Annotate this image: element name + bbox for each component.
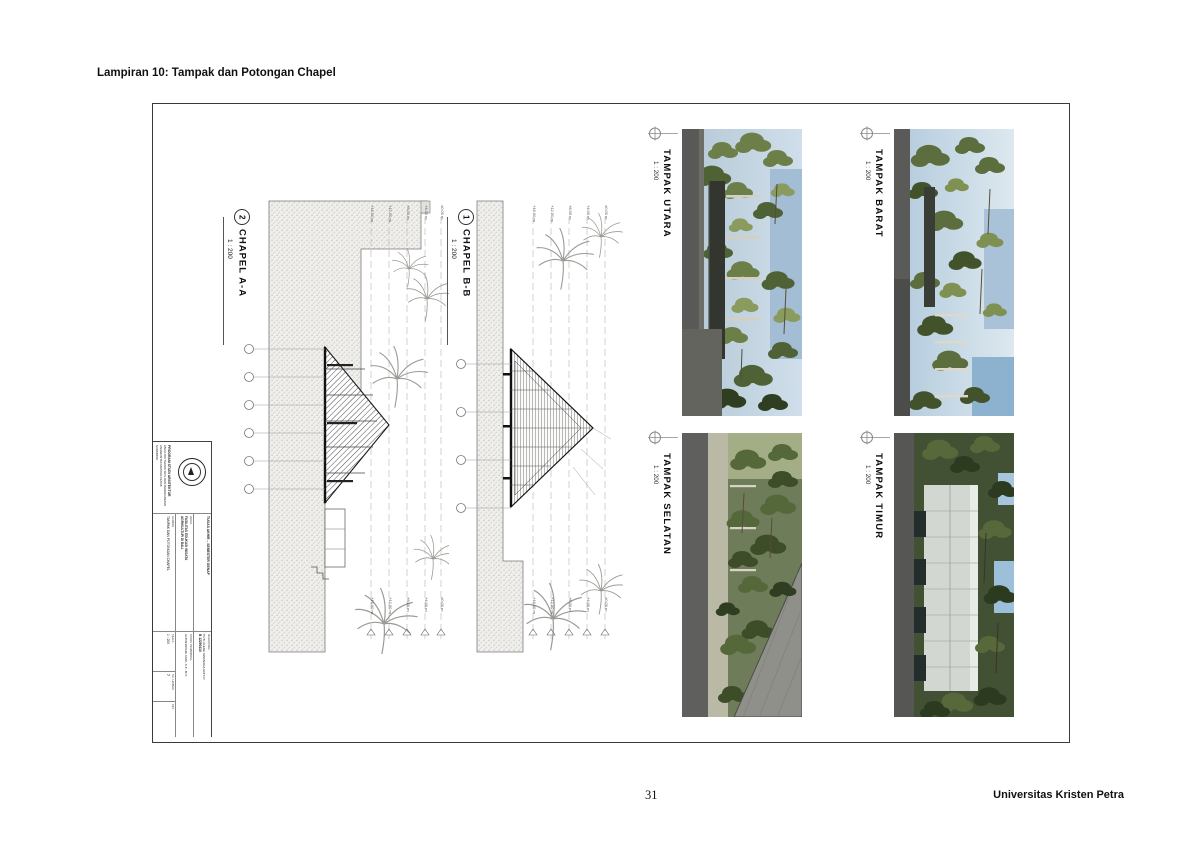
palm-glyphs-aa [355, 248, 449, 654]
svg-text:+8.00 m: +8.00 m [568, 205, 573, 220]
title-block-student-cell: MAHASISWA PUTU GEDE SWANAGA ADHI P. B 12… [193, 632, 211, 737]
svg-text:+4.00 m: +4.00 m [424, 597, 429, 612]
svg-text:+4.00 m: +4.00 m [586, 205, 591, 220]
svg-text:+12.00 m: +12.00 m [550, 205, 555, 222]
tampak-barat-label: 1 : 200 TAMPAK BARAT [859, 125, 891, 238]
label-rule [223, 217, 224, 345]
svg-text:+12.00 m: +12.00 m [388, 597, 393, 614]
svg-text:+4.00 m: +4.00 m [424, 205, 429, 220]
drawing-sheet: +16.00 m +12.00 m +8.00 m +4.00 m ±0.00 … [152, 103, 1070, 743]
svg-text:+4.00 m: +4.00 m [586, 597, 591, 612]
title-block-advisor-cell: DOSEN PEMBIMBING ALTREROSJE ASRI, S.T., … [175, 632, 193, 737]
tampak-utara-label: 1 : 200 TAMPAK UTARA [647, 125, 679, 238]
judul-label: JUDUL [189, 516, 192, 629]
svg-text:+8.00 m: +8.00 m [406, 205, 411, 220]
section-bb-scale: 1 : 200 [450, 239, 457, 345]
page-title: Lampiran 10: Tampak dan Potongan Chapel [97, 67, 336, 79]
section-aa-scale: 1 : 200 [226, 239, 233, 345]
section-aa-drawing: +16.00 m +12.00 m +8.00 m +4.00 m ±0.00 … [241, 199, 449, 654]
tampak-barat-title: TAMPAK BARAT [873, 149, 884, 238]
tampak-utara-title: TAMPAK UTARA [661, 149, 672, 238]
tampak-utara-image [682, 129, 802, 416]
skala-value: 1 : 200 [166, 634, 170, 669]
view-marker-icon [859, 429, 891, 446]
project-header: TUGAS AKHIR – SEMESTER GENAP [206, 516, 210, 629]
tampak-utara-scale: 1 : 200 [652, 161, 659, 238]
section-aa-label: 1 : 200 2 CHAPEL A-A [223, 209, 250, 345]
lembar-label: NO. LEMBAR [171, 674, 174, 699]
svg-text:+8.00 m: +8.00 m [406, 597, 411, 612]
svg-text:+16.00 m: +16.00 m [532, 597, 537, 614]
title-block-scale-cell: SKALA 1 : 200 [153, 632, 175, 672]
university-logo [178, 458, 206, 486]
tampak-timur-title: TAMPAK TIMUR [873, 453, 884, 539]
svg-text:±0.00 m: ±0.00 m [440, 205, 445, 220]
gambar-label: GAMBAR [171, 516, 174, 629]
svg-text:±0.00 m: ±0.00 m [440, 597, 445, 612]
mahasiswa-name: PUTU GEDE SWANAGA ADHI P. [202, 634, 206, 735]
title-block-institution-cell: PROGRAM STUDI ARSITEKTUR FAKULTAS TEKNIK… [153, 442, 211, 514]
chapel-section-bb [503, 349, 611, 507]
svg-text:+12.00 m: +12.00 m [550, 597, 555, 614]
dosen-label: DOSEN PEMBIMBING [189, 634, 192, 735]
svg-text:±0.00 m: ±0.00 m [604, 205, 609, 220]
label-rule [447, 217, 448, 345]
tampak-timur-scale: 1 : 200 [864, 465, 871, 539]
title-block-sheetno-cell: NO. LEMBAR 7 [153, 672, 175, 702]
title-block-gambar-cell: GAMBAR TAMPAK DAN POTONGAN CHAPEL [153, 514, 175, 632]
tampak-selatan-title: TAMPAK SELATAN [661, 453, 672, 555]
title-block-ket-cell: KET. [153, 702, 175, 737]
section-aa-number-bubble: 2 [234, 209, 250, 225]
section-aa-title: CHAPEL A-A [237, 229, 248, 297]
dosen-name: ALTREROSJE ASRI, S.T., M.T. [184, 634, 188, 735]
tampak-barat-scale: 1 : 200 [864, 161, 871, 238]
ket-label: KET. [171, 704, 174, 735]
elevation-labels-bb-top: +16.00 m +12.00 m +8.00 m +4.00 m ±0.00 … [532, 205, 609, 222]
footer-institution: Universitas Kristen Petra [993, 789, 1124, 801]
section-bb-drawing: +16.00 m +12.00 m +8.00 m +4.00 m ±0.00 … [453, 199, 623, 654]
title-block-project-cell: TUGAS AKHIR – SEMESTER GENAP [193, 514, 211, 632]
svg-text:+8.00 m: +8.00 m [568, 597, 573, 612]
mahasiswa-label: MAHASISWA [207, 634, 210, 735]
view-marker-icon [647, 125, 679, 142]
gambar-value: TAMPAK DAN POTONGAN CHAPEL [166, 516, 170, 629]
view-marker-icon [859, 125, 891, 142]
section-bb-title: CHAPEL B-B [461, 229, 472, 297]
skala-label: SKALA [171, 634, 174, 669]
lembar-value: 7 [166, 674, 170, 699]
tampak-selatan-image [682, 433, 802, 717]
tampak-barat-image [894, 129, 1014, 416]
title-block-judul-cell: JUDUL FASILITAS EDUKASI WISATA AGRIKULTU… [175, 514, 193, 632]
svg-text:+16.00 m: +16.00 m [370, 205, 375, 222]
tampak-timur-image [894, 433, 1014, 717]
title-block: PROGRAM STUDI ARSITEKTUR FAKULTAS TEKNIK… [153, 441, 212, 737]
tampak-selatan-label: 1 : 200 TAMPAK SELATAN [647, 429, 679, 555]
svg-text:+12.00 m: +12.00 m [388, 205, 393, 222]
judul-line-1: FASILITAS EDUKASI WISATA [184, 516, 188, 629]
tampak-selatan-scale: 1 : 200 [652, 465, 659, 555]
tampak-timur-label: 1 : 200 TAMPAK TIMUR [859, 429, 891, 539]
view-marker-icon [647, 429, 679, 446]
svg-text:+16.00 m: +16.00 m [370, 597, 375, 614]
svg-text:+16.00 m: +16.00 m [532, 205, 537, 222]
page-number: 31 [645, 788, 658, 803]
svg-text:±0.00 m: ±0.00 m [604, 597, 609, 612]
program-name: PROGRAM STUDI ARSITEKTUR [167, 445, 171, 506]
section-bb-number-bubble: 1 [458, 209, 474, 225]
section-bb-label: 1 : 200 1 CHAPEL B-B [447, 209, 474, 345]
